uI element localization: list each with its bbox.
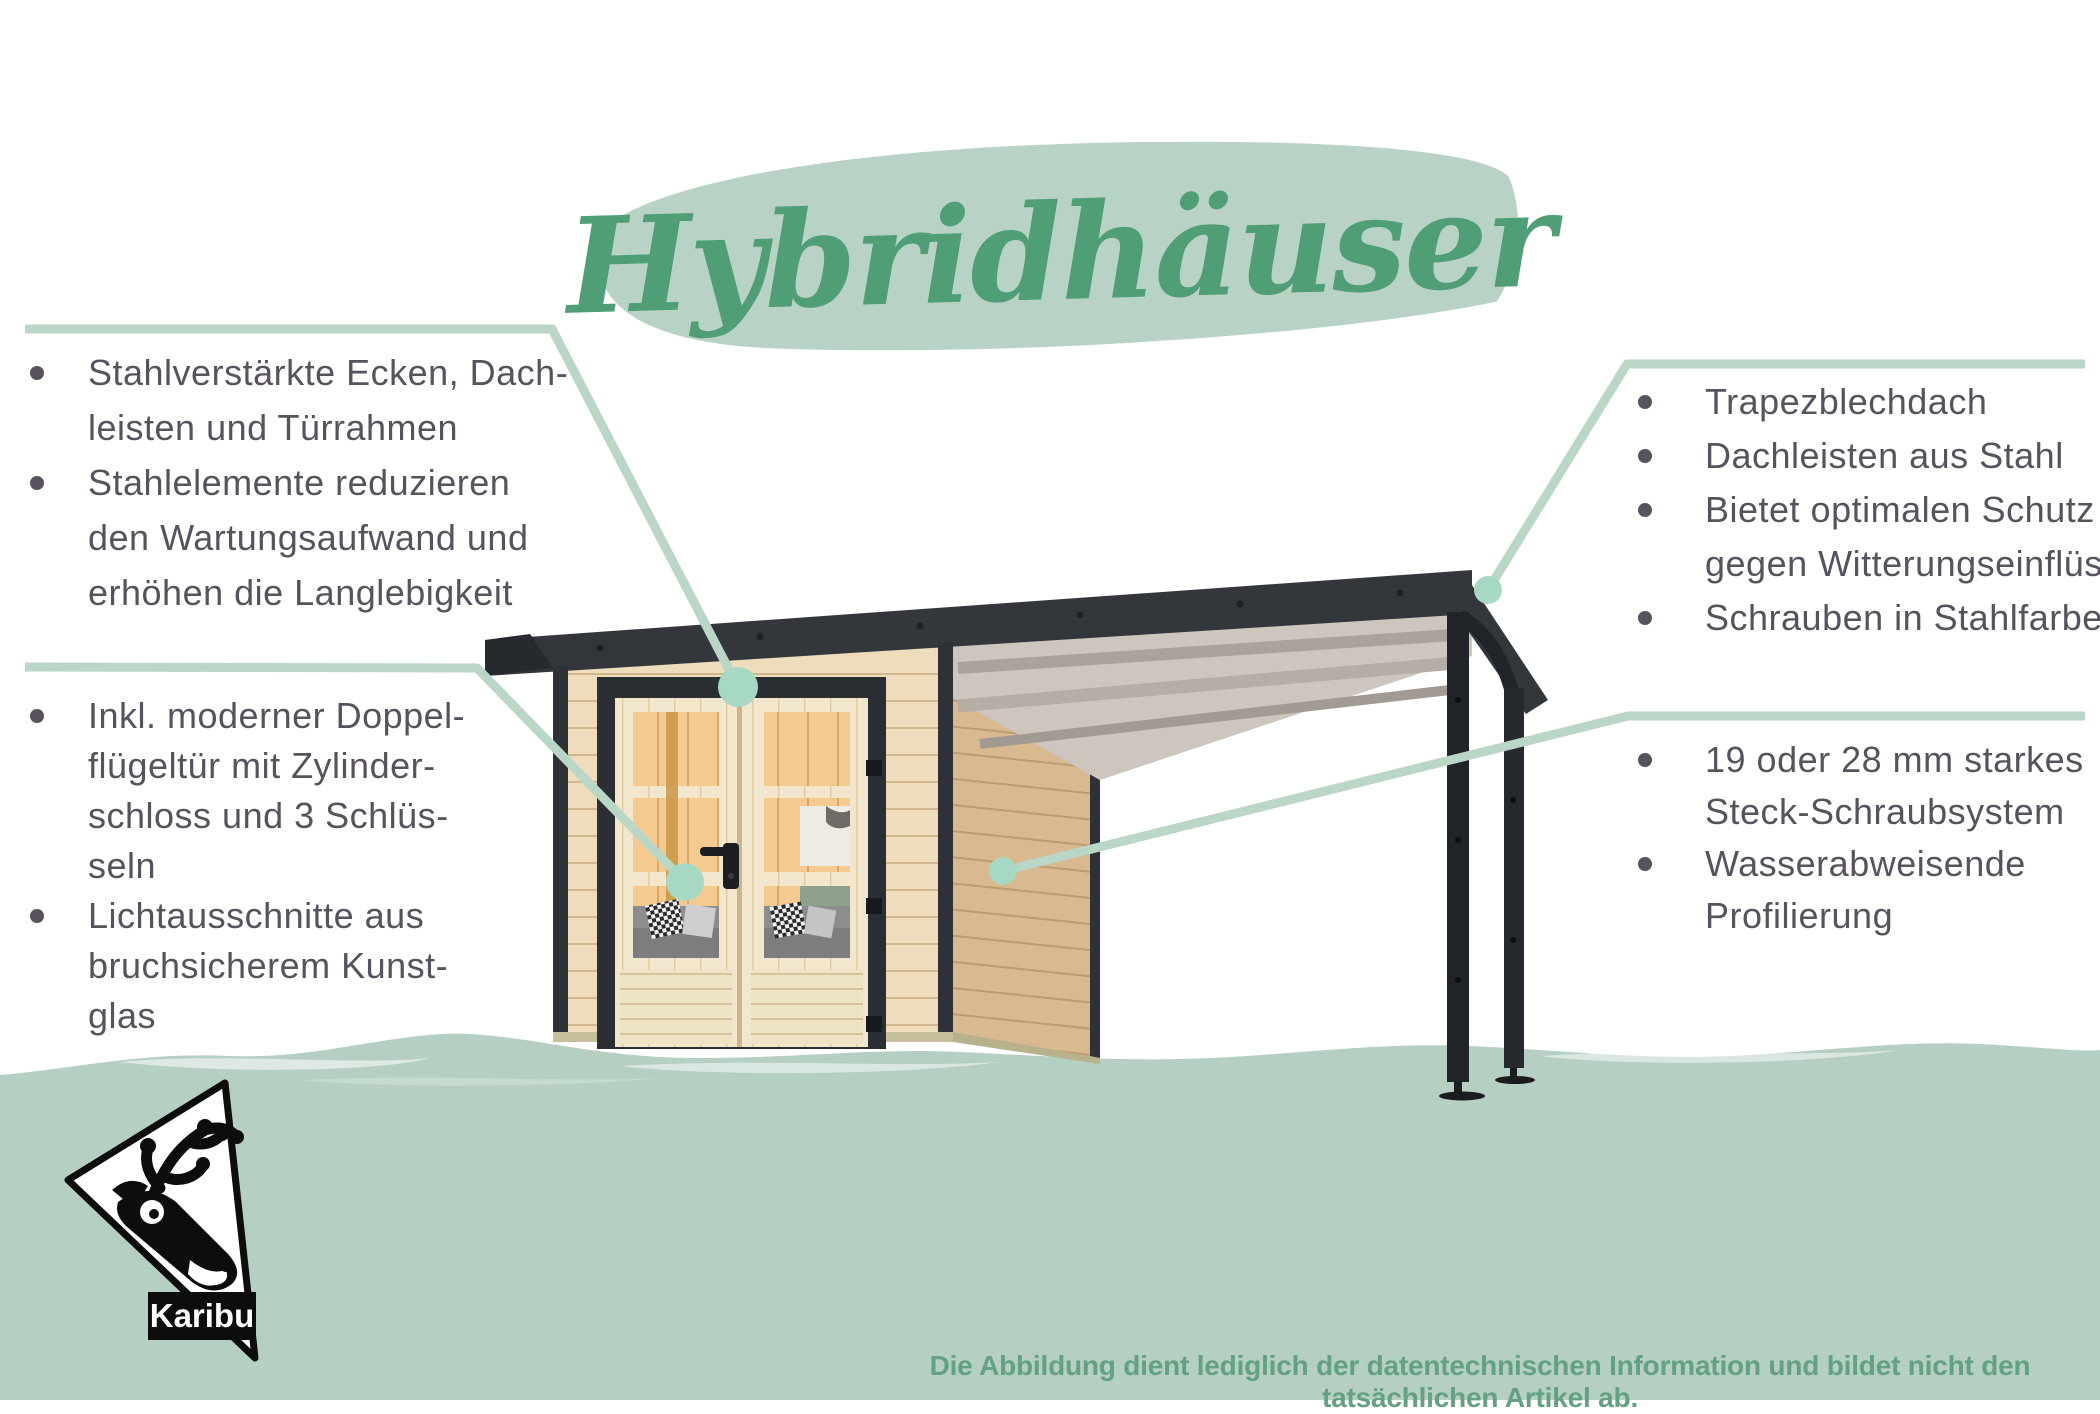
- callout-line: Trapezblechdach: [1632, 375, 2100, 429]
- callout-text: leisten und Türrahmen: [88, 407, 458, 448]
- callout-line: Lichtausschnitte aus: [24, 891, 465, 941]
- callout-text: Wasserabweisende: [1705, 843, 2026, 884]
- callout-text: Trapezblechdach: [1705, 381, 1987, 422]
- callout-line: seln: [24, 841, 465, 891]
- callout-line: erhöhen die Langlebigkeit: [24, 565, 568, 620]
- door-bottom-slats: [620, 970, 732, 1044]
- callout-text: erhöhen die Langlebigkeit: [88, 572, 513, 613]
- logo-brand: Karibu: [150, 1297, 255, 1334]
- canopy-front-post: [1447, 612, 1469, 1082]
- callout-line: Inkl. moderner Doppel-: [24, 691, 465, 741]
- bullet-icon: [30, 709, 44, 723]
- ground-band: [0, 1034, 2100, 1400]
- callout-line: Dachleisten aus Stahl: [1632, 429, 2100, 483]
- callout-text: Stahlelemente reduzieren: [88, 462, 510, 503]
- bullet-icon: [1638, 503, 1652, 517]
- karibu-logo: Karibu: [40, 1070, 300, 1390]
- callout-line: den Wartungsaufwand und: [24, 510, 568, 565]
- callout-text: den Wartungsaufwand und: [88, 517, 528, 558]
- callout-text: Stahlverstärkte Ecken, Dach-: [88, 352, 568, 393]
- callout-line: Schrauben in Stahlfarbe: [1632, 591, 2100, 645]
- page-title-area: Hybridhäuser: [570, 128, 1550, 363]
- callout-line: bruchsicherem Kunst-: [24, 941, 465, 991]
- disclaimer-text: Die Abbildung dient lediglich der datent…: [880, 1350, 2080, 1414]
- callout-text: Lichtausschnitte aus: [88, 895, 424, 936]
- canopy-structure: [1439, 576, 1548, 1101]
- callout-text: Inkl. moderner Doppel-: [88, 695, 465, 736]
- callout-dot-door-frame: [718, 667, 758, 707]
- callout-text: Profilierung: [1705, 895, 1893, 936]
- callout-dot-roof: [1474, 576, 1502, 604]
- callout-line: flügeltür mit Zylinder-: [24, 741, 465, 791]
- callout-text: Bietet optimalen Schutz: [1705, 489, 2095, 530]
- double-door: [597, 677, 886, 1049]
- callout-text: 19 oder 28 mm starkes: [1705, 739, 2084, 780]
- callout-text: bruchsicherem Kunst-: [88, 945, 448, 986]
- callout-line: glas: [24, 991, 465, 1041]
- callout-line: Stahlverstärkte Ecken, Dach-: [24, 345, 568, 400]
- callout-double-door: Inkl. moderner Doppel- flügeltür mit Zyl…: [24, 691, 465, 1041]
- bullet-icon: [1638, 449, 1652, 463]
- callout-line: 19 oder 28 mm starkes: [1632, 734, 2084, 786]
- callout-wall-system: 19 oder 28 mm starkes Steck-Schraubsyste…: [1632, 734, 2084, 942]
- callout-roof: Trapezblechdach Dachleisten aus Stahl Bi…: [1632, 375, 2100, 645]
- callout-text: glas: [88, 995, 156, 1036]
- bullet-icon: [30, 366, 44, 380]
- callout-line: leisten und Türrahmen: [24, 400, 568, 455]
- bullet-icon: [30, 909, 44, 923]
- callout-text: gegen Witterungseinflüsse: [1705, 543, 2100, 584]
- callout-steel-corners: Stahlverstärkte Ecken, Dach- leisten und…: [24, 345, 568, 620]
- page-title: Hybridhäuser: [567, 122, 1553, 384]
- bullet-icon: [1638, 753, 1652, 767]
- callout-line: Bietet optimalen Schutz: [1632, 483, 2100, 537]
- callout-line: Profilierung: [1632, 890, 2084, 942]
- callout-line: gegen Witterungseinflüsse: [1632, 537, 2100, 591]
- callout-line: schloss und 3 Schlüs-: [24, 791, 465, 841]
- bullet-icon: [1638, 857, 1652, 871]
- bullet-icon: [1638, 611, 1652, 625]
- callout-text: seln: [88, 845, 156, 886]
- callout-line: Stahlelemente reduzieren: [24, 455, 568, 510]
- callout-text: schloss und 3 Schlüs-: [88, 795, 449, 836]
- callout-line: Wasserabweisende: [1632, 838, 2084, 890]
- logo-brand-box: Karibu: [148, 1292, 256, 1340]
- callout-line: Steck-Schraubsystem: [1632, 786, 2084, 838]
- callout-text: Steck-Schraubsystem: [1705, 791, 2065, 832]
- callout-dot-side-wall: [989, 857, 1017, 885]
- bullet-icon: [1638, 395, 1652, 409]
- callout-dot-door-glass: [666, 863, 704, 901]
- callout-text: flügeltür mit Zylinder-: [88, 745, 436, 786]
- callout-text: Dachleisten aus Stahl: [1705, 435, 2064, 476]
- callout-text: Schrauben in Stahlfarbe: [1705, 597, 2100, 638]
- bullet-icon: [30, 476, 44, 490]
